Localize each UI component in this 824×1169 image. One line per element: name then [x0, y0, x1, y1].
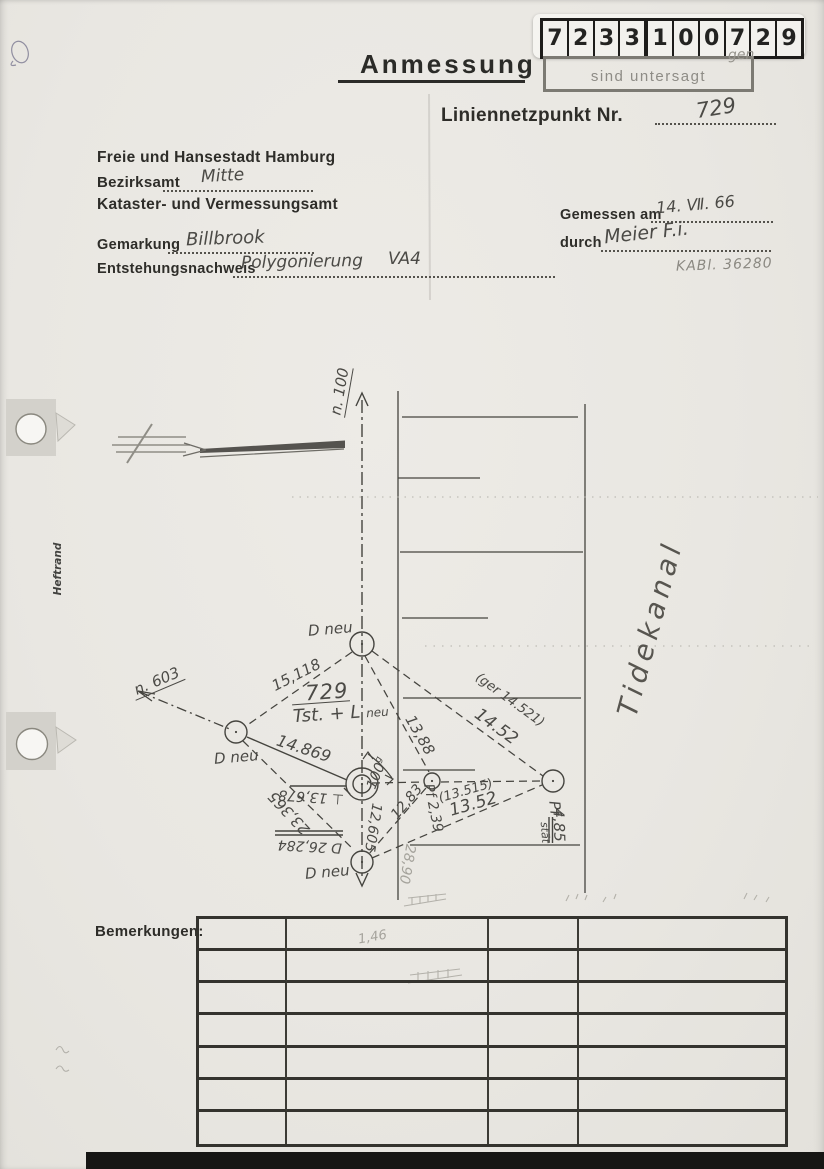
table-cell: [489, 951, 579, 983]
scan-edge-bar: [86, 1152, 824, 1169]
table-cell: [579, 1112, 785, 1144]
digit-cell: 0: [700, 21, 726, 56]
org-line1: Freie und Hansestadt Hamburg: [97, 149, 335, 167]
table-cell: [579, 1080, 785, 1112]
point-number-grid: 7 2 3 3 1 0 0 7 2 9: [540, 18, 804, 59]
table-cell: [489, 1112, 579, 1144]
page-title: Anmessung: [360, 49, 536, 80]
west-axis-line: [138, 691, 232, 730]
table-cell: [287, 951, 489, 983]
point-number-sticker: 7 2 3 3 1 0 0 7 2 9: [533, 14, 805, 58]
title-underline: [338, 80, 525, 83]
measure-d-value: D 26,284: [280, 836, 343, 855]
node-bottom-label: D neu: [304, 861, 350, 883]
table-cell: [287, 983, 489, 1015]
entstehung-label: Entstehungsnachweis: [97, 261, 256, 277]
table-cell: [287, 1112, 489, 1144]
digit-cell: 1: [648, 21, 674, 56]
durch-label: durch: [560, 235, 602, 251]
table-cell: [287, 1080, 489, 1112]
node-left-label: D neu: [213, 746, 259, 768]
digit-cell: 3: [595, 21, 621, 56]
table-cell: [287, 1048, 489, 1080]
table-cell: [489, 983, 579, 1015]
entstehung-value: Polygonierung: [241, 251, 363, 273]
gemessen-label: Gemessen am: [560, 207, 662, 223]
stamp-fragment: gen: [728, 47, 755, 64]
table-cell: [199, 1015, 287, 1047]
table-cell: [489, 1048, 579, 1080]
pencil-strike-mark: [112, 424, 190, 463]
table-cell: [199, 1048, 287, 1080]
point-label: Liniennetzpunkt Nr.: [441, 105, 623, 127]
right-node-value: 4,85: [549, 805, 568, 846]
node-top-label: D neu: [307, 618, 353, 640]
table-cell: [489, 1015, 579, 1047]
table-cell: [199, 1080, 287, 1112]
digit-cell: 9: [777, 21, 801, 56]
prohibition-stamp: sind untersagt: [543, 56, 754, 92]
table-cell: [199, 951, 287, 983]
digit-cell: 0: [674, 21, 700, 56]
scanned-survey-document: Anmessung 7 2 3 3 1 0 0 7 2 9 sind unter…: [0, 0, 824, 1169]
pencil-wedge-mark: [183, 441, 345, 458]
table-cell: [579, 919, 785, 951]
point-identifier: 729 Tst. + L neu: [291, 676, 390, 728]
table-cell: [489, 919, 579, 951]
table-cell: [199, 1112, 287, 1144]
bemerkungen-label: Bemerkungen:: [95, 923, 204, 940]
table-cell: [199, 919, 287, 951]
stamp-text: sind untersagt: [591, 68, 706, 85]
table-cell: [199, 983, 287, 1015]
table-cell: [579, 951, 785, 983]
hole-punch-bottom: [6, 712, 76, 770]
point-desc-suffix: neu: [366, 705, 390, 721]
digit-cell: 2: [751, 21, 777, 56]
digit-cell: 2: [569, 21, 595, 56]
heftrand-label: Heftrand: [52, 528, 64, 610]
hole-punch-top: [6, 399, 75, 456]
kabl-note: KABl. 36280: [676, 255, 773, 274]
table-cell: [579, 1015, 785, 1047]
table-cell: [579, 1048, 785, 1080]
bezirksamt-value: Mitte: [201, 165, 245, 187]
table-cell: [287, 1015, 489, 1047]
org-line2: Kataster- und Vermessungsamt: [97, 196, 338, 214]
digit-cell: 3: [620, 21, 648, 56]
gemarkung-value: Billbrook: [186, 227, 265, 251]
digit-cell: 7: [543, 21, 569, 56]
table-cell: [489, 1080, 579, 1112]
table-cell: [579, 983, 785, 1015]
pencil-doodle-icon: [9, 39, 31, 65]
table-cell: [287, 919, 489, 951]
remarks-table: [196, 916, 788, 1147]
entstehung-value2: VA4: [388, 249, 421, 269]
